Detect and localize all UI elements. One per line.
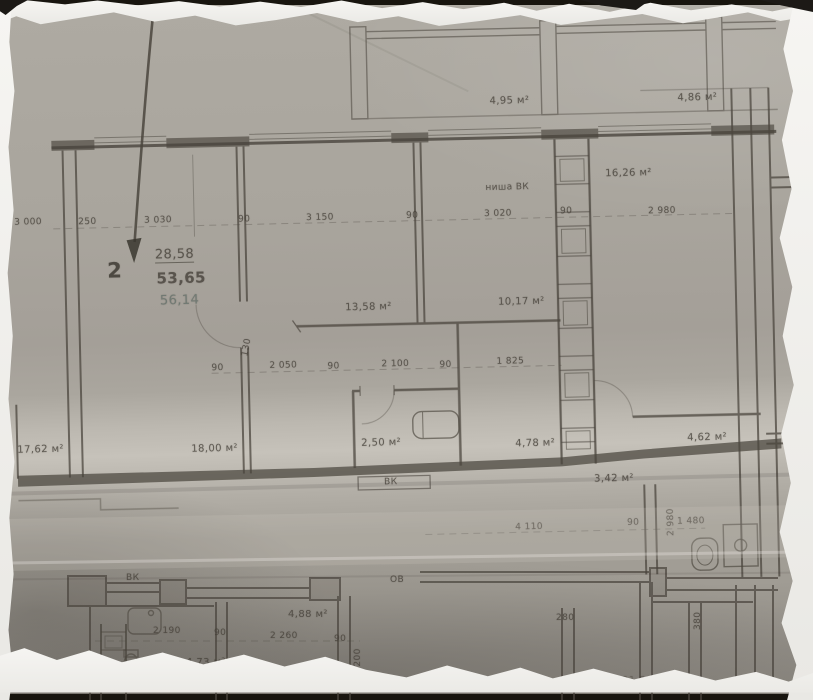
vent-shaft [554, 139, 595, 465]
dimension-lines [53, 213, 741, 542]
floor-plan-drawing [0, 0, 813, 700]
lower-shaft [101, 624, 126, 700]
bathroom-fixtures [413, 404, 759, 577]
door-arcs [196, 295, 633, 428]
upper-bottom-wall [17, 438, 782, 497]
upper-apartment-walls [9, 87, 813, 594]
floor-plan-photo: 28,58 2 53,65 56,14 3 000 250 3 030 90 3… [0, 0, 813, 700]
balcony-outlines [350, 15, 778, 119]
lower-apartment-walls [68, 568, 778, 700]
